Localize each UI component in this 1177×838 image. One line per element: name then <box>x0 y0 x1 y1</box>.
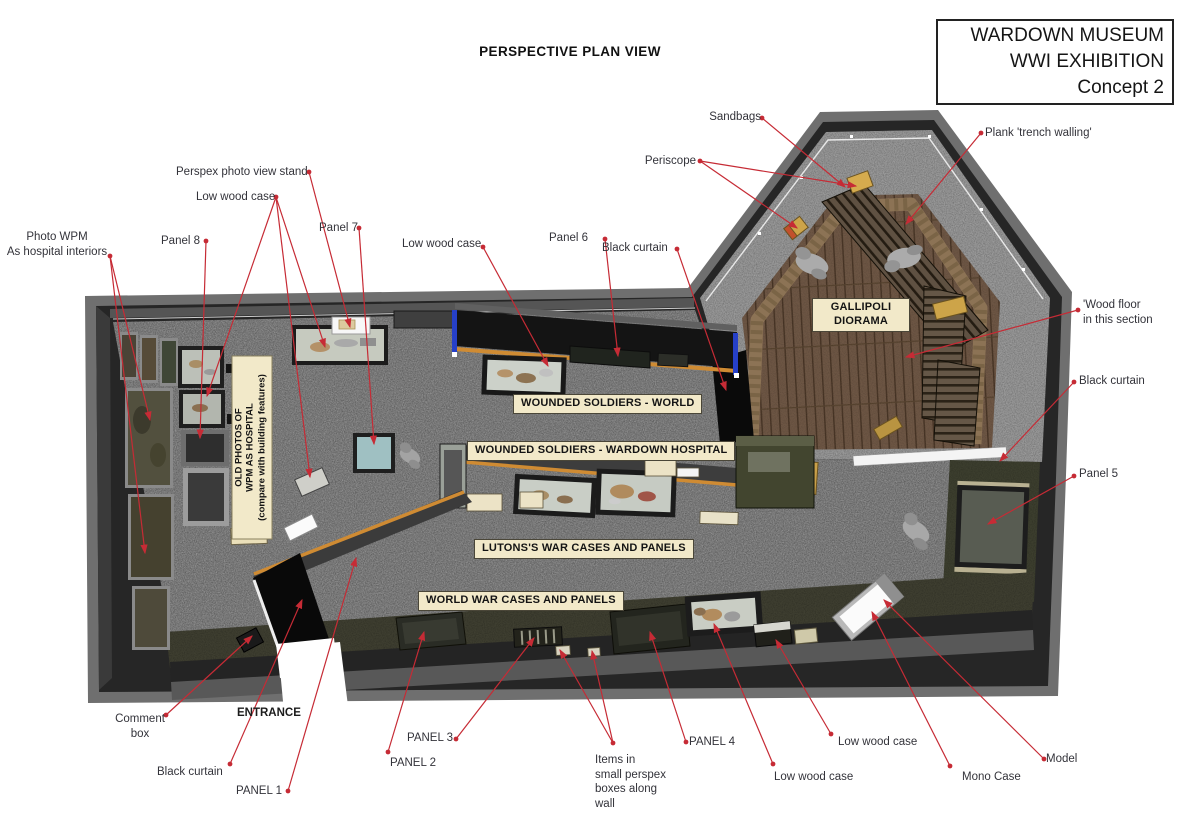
annotation-panel-7: Panel 7 <box>319 221 358 236</box>
annotation-low-wood-case-mid: Low wood case <box>402 237 481 252</box>
zone-label-gallipoli: GALLIPOLI DIORAMA <box>812 298 910 332</box>
annotation-panel-2: PANEL 2 <box>390 756 436 771</box>
zone-label-wounded-world: WOUNDED SOLDIERS - WORLD <box>513 394 702 414</box>
small-panel-wall-a <box>658 353 689 367</box>
top-wall-ledge <box>394 311 454 328</box>
glass-case-wall-a <box>481 355 566 398</box>
annotation-photo-wpm: Photo WPM As hospital interiors <box>6 230 108 259</box>
annotation-panel-1: PANEL 1 <box>236 784 282 799</box>
zone-label-wounded-wardown: WOUNDED SOLDIERS - WARDOWN HOSPITAL <box>467 441 735 461</box>
annotation-black-curtain-entrance: Black curtain <box>157 765 223 780</box>
annotation-low-wood-case-top: Low wood case <box>196 190 275 205</box>
panel-4-board <box>610 604 690 654</box>
title-block-line1: WARDOWN MUSEUM <box>938 23 1164 49</box>
annotation-panel-6: Panel 6 <box>549 231 588 246</box>
panel-2-board <box>396 612 466 650</box>
entrance-label: ENTRANCE <box>237 706 301 721</box>
annotation-low-wood-case-bottom-mid: Low wood case <box>774 770 853 785</box>
annotation-periscope: Periscope <box>636 154 696 169</box>
title-block-line3: Concept 2 <box>938 75 1164 101</box>
annotation-plank-trench: Plank 'trench walling' <box>985 126 1092 141</box>
panel-5-board <box>954 481 1029 574</box>
zone-label-world-war: WORLD WAR CASES AND PANELS <box>418 591 624 611</box>
annotation-comment-box: Comment box <box>111 712 169 741</box>
annotation-perspex-stand: Perspex photo view stand <box>176 165 308 180</box>
zone-label-old-photos: OLD PHOTOS OF WPM AS HOSPITAL (compare w… <box>232 356 273 540</box>
annotation-model: Model <box>1046 752 1077 767</box>
zone-label-lutons: LUTONS'S WAR CASES AND PANELS <box>474 539 694 559</box>
annotation-black-curtain-right: Black curtain <box>1079 374 1145 389</box>
large-olive-case <box>736 436 814 508</box>
title-block: WARDOWN MUSEUM WWI EXHIBITION Concept 2 <box>936 19 1174 105</box>
exhibition-plan-page: PERSPECTIVE PLAN VIEW WARDOWN MUSEUM WWI… <box>0 0 1177 838</box>
panel-3-striped-case <box>514 627 563 647</box>
title-block-line2: WWI EXHIBITION <box>938 49 1164 75</box>
tiny-box-bottom <box>794 628 817 644</box>
annotation-panel-3: PANEL 3 <box>407 731 453 746</box>
page-title: PERSPECTIVE PLAN VIEW <box>420 44 720 59</box>
annotation-black-curtain-top: Black curtain <box>602 241 668 256</box>
annotation-panel-8: Panel 8 <box>161 234 200 249</box>
small-case-bottom <box>754 621 792 647</box>
annotation-low-wood-case-bottom-right: Low wood case <box>838 735 917 750</box>
annotation-panel-5: Panel 5 <box>1079 467 1118 482</box>
annotation-mono-case: Mono Case <box>962 770 1021 785</box>
annotation-sandbags: Sandbags <box>695 110 761 125</box>
entrance-opening <box>278 642 348 712</box>
glass-case-bottom <box>685 591 764 636</box>
annotation-wood-floor: 'Wood floor in this section <box>1083 298 1153 327</box>
perspex-photo-stand <box>332 317 370 334</box>
annotation-items-perspex: Items in small perspex boxes along wall <box>595 753 666 812</box>
annotation-panel-4: PANEL 4 <box>689 735 735 750</box>
